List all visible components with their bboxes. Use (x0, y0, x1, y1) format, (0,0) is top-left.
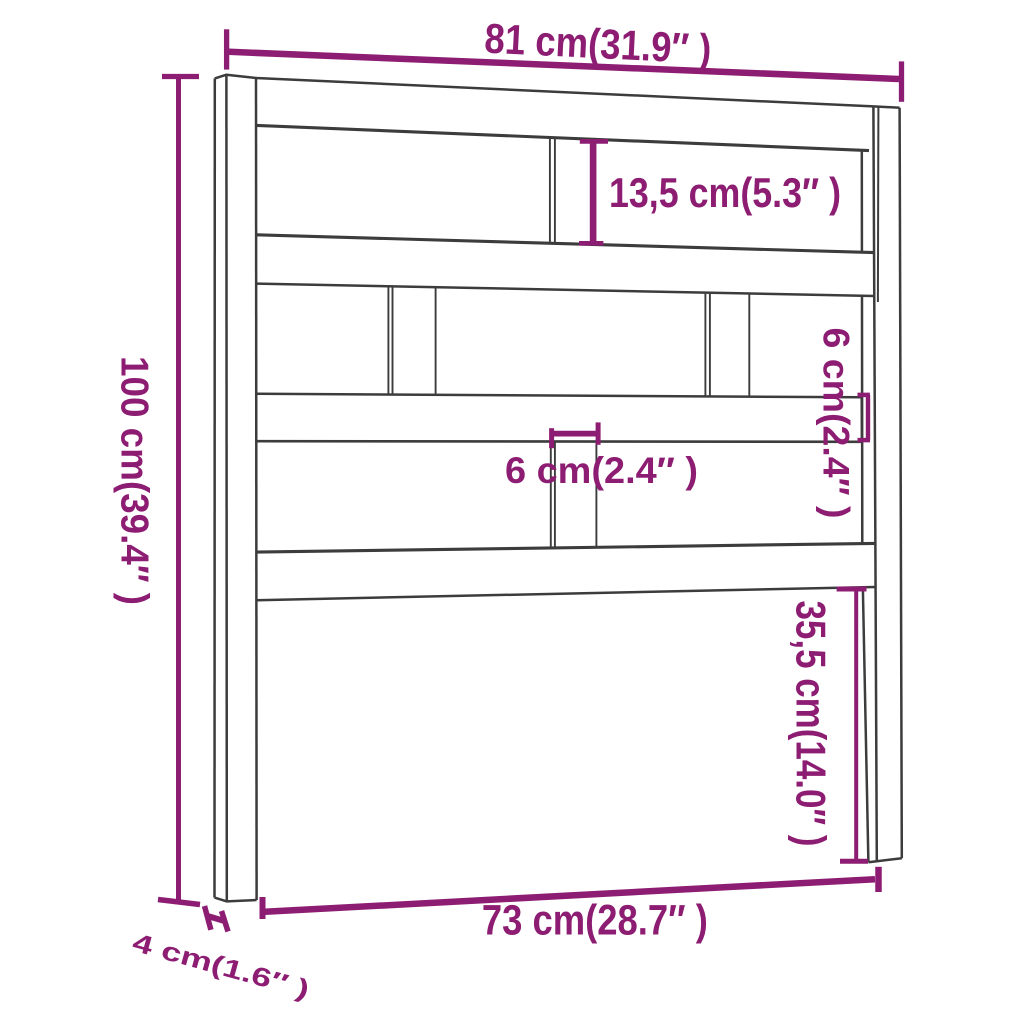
svg-text:6 cm(2.4″ ): 6 cm(2.4″ ) (505, 450, 698, 491)
svg-text:6 cm(2.4″ ): 6 cm(2.4″ ) (815, 328, 856, 519)
svg-text:73 cm(28.7″ ): 73 cm(28.7″ ) (482, 897, 708, 945)
svg-text:100 cm(39.4″ ): 100 cm(39.4″ ) (113, 356, 156, 605)
svg-text:13,5 cm(5.3″ ): 13,5 cm(5.3″ ) (609, 169, 841, 216)
svg-text:35,5 cm(14.0″ ): 35,5 cm(14.0″ ) (787, 601, 834, 847)
